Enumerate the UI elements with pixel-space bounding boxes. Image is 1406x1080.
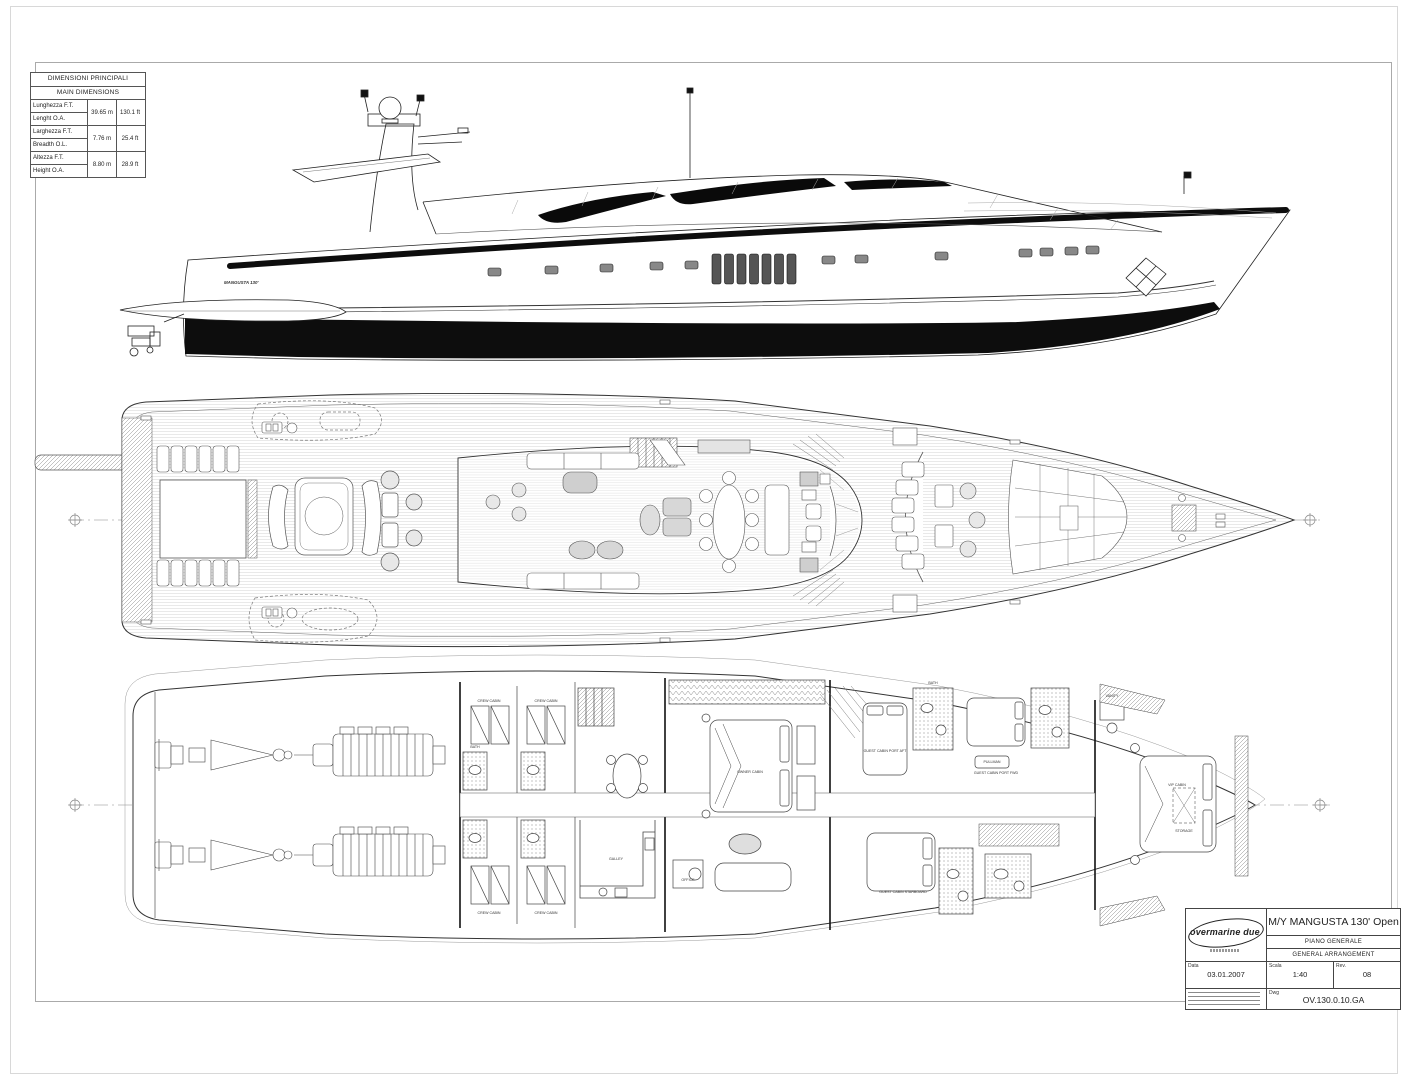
- room-label: GALLEY: [609, 857, 624, 861]
- dim-label: Lenght O.A.: [31, 113, 87, 125]
- dim-label: Larghezza F.T.: [31, 126, 87, 139]
- scale-value: 1:40: [1267, 970, 1333, 979]
- room-label: BATH: [470, 745, 480, 749]
- room-label: STORAGE: [1175, 829, 1193, 833]
- dim-metric: 39.65 m: [88, 100, 117, 125]
- room-label: GUEST CABIN PORT AFT: [864, 749, 908, 753]
- scale-label: Scala: [1269, 963, 1282, 969]
- title-block: overmarine due M/Y MANGUSTA 130' Open PI…: [1185, 908, 1401, 1010]
- date-value: 03.01.2007: [1186, 970, 1266, 979]
- dim-label: Altezza F.T.: [31, 152, 87, 165]
- dim-metric: 7.76 m: [88, 126, 117, 151]
- room-label: CREW CABIN: [535, 911, 558, 915]
- dim-label: Lunghezza F.T.: [31, 100, 87, 113]
- fine-print: [1188, 991, 1260, 1005]
- room-label: CREW CABIN: [535, 699, 558, 703]
- lower-deck-plan: CREW CABIN CREW CABIN CREW CABIN CREW CA…: [55, 648, 1345, 940]
- profile-view: MANGUSTA 130': [118, 82, 1303, 372]
- dim-metric: 8.80 m: [88, 152, 117, 177]
- date-label: Data: [1188, 963, 1199, 969]
- garage-hatch: [160, 480, 246, 558]
- room-label: GUEST CABIN STARBOARD: [879, 890, 927, 894]
- dim-label: Breadth O.L.: [31, 139, 87, 151]
- room-label: VIP CABIN: [1168, 783, 1186, 787]
- room-label: CREW CABIN: [478, 699, 501, 703]
- builder-logo: overmarine due: [1186, 909, 1267, 961]
- project-title: M/Y MANGUSTA 130' Open: [1267, 909, 1400, 936]
- logo-subtext: [1210, 949, 1240, 952]
- main-deck-plan: [30, 386, 1345, 664]
- tinted-glazing: [538, 178, 952, 223]
- room-label: CREW CABIN: [478, 911, 501, 915]
- rev-value: 08: [1334, 970, 1400, 979]
- room-label: OFFICE: [681, 878, 695, 882]
- room-label: OWNER CABIN: [737, 770, 763, 774]
- room-label: GUEST CABIN PORT FWD: [974, 771, 1019, 775]
- room-label: VANITY: [1106, 694, 1119, 698]
- room-label: BATH: [928, 681, 938, 685]
- room-label: PULLMAN: [984, 760, 1001, 764]
- drawing-subtitle-it: PIANO GENERALE: [1267, 936, 1400, 949]
- transom-steps: [122, 418, 152, 622]
- hardtop-wing: [293, 154, 440, 182]
- drawing-sheet: { "document": { "type": "general-arrange…: [0, 0, 1406, 1080]
- hull-name-text: MANGUSTA 130': [224, 280, 259, 285]
- hull-window-band: [712, 254, 796, 284]
- dwg-number: OV.130.0.10.GA: [1267, 995, 1400, 1005]
- rev-label: Rev.: [1336, 963, 1346, 969]
- dim-label: Height O.A.: [31, 165, 87, 177]
- logo-text: overmarine due: [1190, 927, 1260, 937]
- radar-dome-icon: [379, 97, 401, 119]
- drawing-subtitle-en: GENERAL ARRANGEMENT: [1267, 949, 1400, 961]
